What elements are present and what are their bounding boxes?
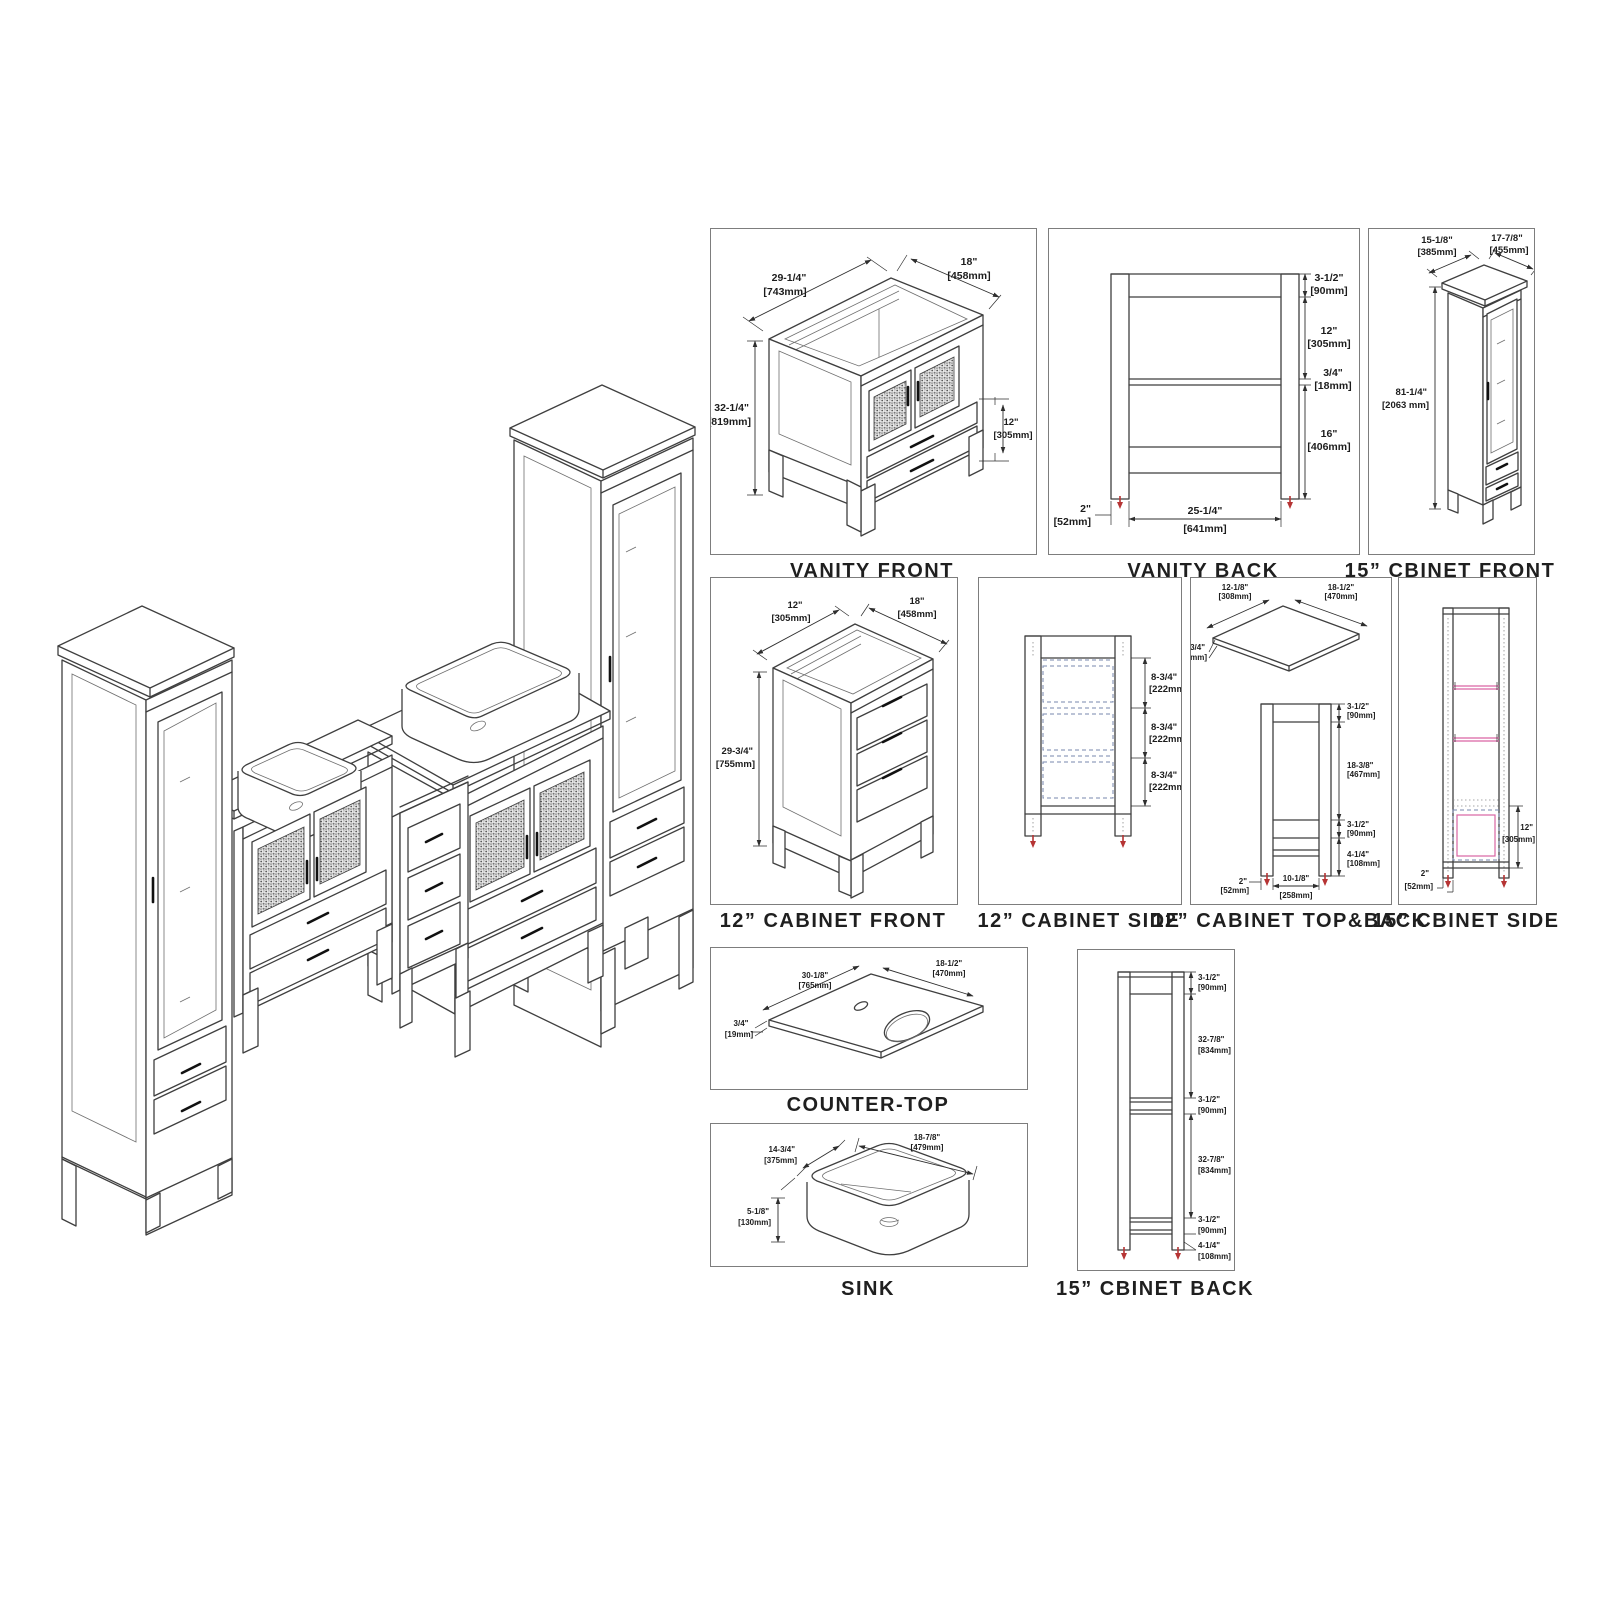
cbinet15-front-drawing (1442, 265, 1527, 524)
dim-thick-in: 3/4" (734, 1019, 749, 1028)
dim-height-mm: [2063 mm] (1382, 400, 1429, 411)
title-sink: SINK (841, 1278, 895, 1301)
spec-sheet: 29-1/4" [743mm] 18" [458mm] 32-1/4" [819… (0, 0, 1600, 1600)
dim-shelf-in: 3/4" (1323, 367, 1343, 379)
dim-top-thick-mm2: [19mm] (1191, 653, 1207, 662)
dim-post-in: 2" (1421, 869, 1429, 878)
panel-vanity-back: 3-1/2" [90mm] 12" [305mm] 3/4" [18mm] 16… (1048, 228, 1360, 555)
dim-width-in: 29-1/4" (772, 272, 807, 284)
dim-bay2-in: 8-3/4" (1151, 722, 1177, 733)
left-linen-cabinet (58, 606, 234, 1235)
cbinet15-back-drawing (1118, 972, 1184, 1260)
dim-depth-in: 18-1/2" (936, 959, 963, 968)
dim-depth-mm: [458mm] (897, 609, 936, 620)
dim-height-mm: [755mm] (716, 759, 755, 770)
dim-drawer-in: 12" (1520, 823, 1533, 832)
vanity-front-drawing (769, 278, 983, 536)
dim-back-span-in: 10-1/8" (1283, 874, 1310, 883)
dim-back-toprail-mm: [90mm] (1347, 711, 1376, 720)
panel-sink: 18-7/8" [479mm] 14-3/4" [375mm] 5-1/8" [… (710, 1123, 1028, 1267)
dim-width-in: 30-1/8" (802, 971, 829, 980)
dim-lower-mm: [406mm] (1307, 441, 1350, 453)
title-cbinet15-side: 15” CBINET SIDE (1373, 910, 1560, 933)
dim-back-opening-in: 18-3/8" (1347, 761, 1374, 770)
panel-cabinet12-front: 12" [305mm] 18" [458mm] 29-3/4" [755mm] (710, 577, 958, 905)
panel-cabinet12-topback: 12-1/8" [308mm] 18-1/2" [470mm] 3/4" [19… (1190, 577, 1392, 905)
panel-cabinet12-side: 8-3/4" [222mm] 8-3/4" [222mm] 8-3/4" [22… (978, 577, 1182, 905)
panel-cbinet15-side: 12" [305mm] 2" [52mm] (1398, 577, 1537, 905)
dim-top-thick-mm: [470mm] (1325, 592, 1358, 601)
dim-drawer-mm: [305mm] (1502, 835, 1535, 844)
dim-height-mm: [819mm] (711, 416, 751, 428)
dim-width-in: 15-1/8" (1421, 235, 1452, 246)
dim-botrail-mm: [90mm] (1198, 1226, 1227, 1235)
dim-mid-mm: [90mm] (1198, 1106, 1227, 1115)
dim-leg-in: 4-1/4" (1198, 1241, 1220, 1250)
dim-height-in: 32-1/4" (714, 402, 749, 414)
dim-span-in: 25-1/4" (1188, 505, 1223, 517)
title-cbinet15-back: 15” CBINET BACK (1056, 1278, 1254, 1301)
dim-depth-mm: [470mm] (933, 969, 966, 978)
dim-leg-mm: [52mm] (1054, 516, 1091, 528)
dim-upper-mm: [834mm] (1198, 1046, 1231, 1055)
cabinet12-back-dimensions: 3-1/2" [90mm] 18-3/8" [467mm] 3-1/2" [90… (1221, 702, 1381, 900)
dim-bay2-mm: [222mm] (1149, 734, 1181, 745)
dim-bay1-mm: [222mm] (1149, 684, 1181, 695)
dim-width-mm: [305mm] (771, 613, 810, 624)
sink-drawing (807, 1144, 969, 1255)
panel-cbinet15-front: 15-1/8" [385mm] 17-7/8" [455mm] 81-1/4" … (1368, 228, 1535, 555)
dim-leg-in: 2" (1080, 503, 1091, 515)
dim-width-mm: [765mm] (799, 981, 832, 990)
dim-top-width-in: 12-1/8" (1222, 583, 1249, 592)
dim-back-leg-in: 4-1/4" (1347, 850, 1369, 859)
dim-width-in: 12" (787, 600, 802, 611)
dim-top-in: 3-1/2" (1198, 973, 1220, 982)
dim-width-mm: [385mm] (1417, 247, 1456, 258)
dim-post-mm: [52mm] (1405, 882, 1434, 891)
cbinet15-side-dimensions: 12" [305mm] 2" [52mm] (1405, 806, 1536, 892)
dim-depth-mm: [458mm] (947, 270, 990, 282)
dim-span-mm: [641mm] (1183, 523, 1226, 535)
dim-bay3-mm: [222mm] (1149, 782, 1181, 793)
dim-width-mm: [743mm] (763, 286, 806, 298)
dim-lower-in: 16" (1321, 428, 1338, 440)
dim-width-in: 14-3/4" (769, 1145, 796, 1154)
vanity-back-dimensions: 3-1/2" [90mm] 12" [305mm] 3/4" [18mm] 16… (1054, 272, 1352, 535)
dim-shelf-mm: [18mm] (1314, 380, 1351, 392)
dim-width-mm: [375mm] (764, 1156, 797, 1165)
dim-toprail-mm: [90mm] (1310, 285, 1347, 297)
dim-depth-in: 18" (961, 256, 978, 268)
dim-botrail-in: 3-1/2" (1198, 1215, 1220, 1224)
dim-toprail-in: 3-1/2" (1315, 272, 1344, 284)
dim-upper-in: 32-7/8" (1198, 1035, 1225, 1044)
dim-height-mm: [130mm] (738, 1218, 771, 1227)
dim-height-in: 29-3/4" (722, 746, 753, 757)
dim-depth-in: 18" (909, 596, 924, 607)
cabinet12-side-drawing (1025, 636, 1131, 848)
dim-top-depth-in: 18-1/2" (1328, 583, 1355, 592)
dim-drawer-in: 12" (1003, 417, 1018, 428)
dim-back-opening-mm: [467mm] (1347, 770, 1380, 779)
dim-back-rail-in: 3-1/2" (1347, 820, 1369, 829)
cabinet12-side-dimensions: 8-3/4" [222mm] 8-3/4" [222mm] 8-3/4" [22… (1131, 658, 1181, 806)
dim-length-in: 18-7/8" (914, 1133, 941, 1142)
dim-height-in: 5-1/8" (747, 1207, 769, 1216)
dim-drawer-mm: [305mm] (993, 430, 1032, 441)
title-countertop: COUNTER-TOP (787, 1094, 950, 1117)
title-cabinet12-front: 12” CABINET FRONT (720, 910, 947, 933)
dim-back-span-mm: [258mm] (1280, 891, 1313, 900)
dim-back-leg-mm: [108mm] (1347, 859, 1380, 868)
title-cabinet12-side: 12” CABINET SIDE (978, 910, 1181, 933)
dim-depth-in: 17-7/8" (1491, 233, 1522, 244)
dim-bay1-in: 8-3/4" (1151, 672, 1177, 683)
panel-countertop: 30-1/8" [765mm] 18-1/2" [470mm] 3/4" [19… (710, 947, 1028, 1090)
dim-top-thick-in: 3/4" (1191, 643, 1205, 652)
cabinet12-back-drawing (1261, 704, 1331, 886)
dim-thick-mm: [19mm] (725, 1030, 754, 1039)
dim-depth-mm: [455mm] (1489, 245, 1528, 256)
dim-back-toprail-in: 3-1/2" (1347, 702, 1369, 711)
dim-length-mm: [479mm] (911, 1143, 944, 1152)
cbinet15-side-drawing (1443, 608, 1509, 888)
dim-back-rail-mm: [90mm] (1347, 829, 1376, 838)
cbinet15-back-dimensions: 3-1/2" [90mm] 32-7/8" [834mm] 3-1/2" [90… (1184, 972, 1231, 1261)
dim-opening-mm: [305mm] (1307, 338, 1350, 350)
cabinet12-front-drawing (773, 624, 933, 898)
vanity-back-drawing (1111, 274, 1299, 509)
dim-leg-mm: [108mm] (1198, 1252, 1231, 1261)
dim-top-width-mm: [308mm] (1219, 592, 1252, 601)
vanity-set-isometric-drawing (30, 330, 710, 1250)
dim-lower-mm: [834mm] (1198, 1166, 1231, 1175)
panel-vanity-front: 29-1/4" [743mm] 18" [458mm] 32-1/4" [819… (710, 228, 1037, 555)
vanity-set-illustration (30, 330, 710, 1250)
dim-back-post-mm: [52mm] (1221, 886, 1250, 895)
dim-opening-in: 12" (1321, 325, 1338, 337)
dim-lower-in: 32-7/8" (1198, 1155, 1225, 1164)
dim-height-in: 81-1/4" (1396, 387, 1427, 398)
dim-mid-in: 3-1/2" (1198, 1095, 1220, 1104)
panel-cbinet15-back: 3-1/2" [90mm] 32-7/8" [834mm] 3-1/2" [90… (1077, 949, 1235, 1271)
dim-back-post-in: 2" (1239, 877, 1247, 886)
dim-bay3-in: 8-3/4" (1151, 770, 1177, 781)
dim-top-mm: [90mm] (1198, 983, 1227, 992)
